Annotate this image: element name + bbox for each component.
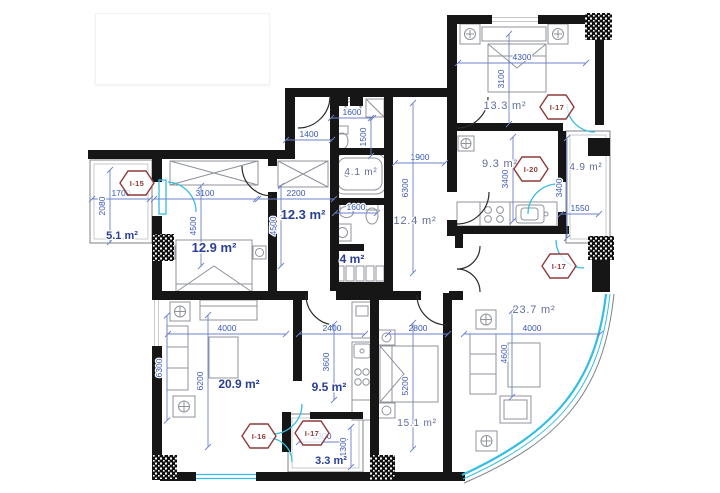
room-area-label: 15.1 m² xyxy=(397,418,437,429)
dimension-label: 3100 xyxy=(496,69,506,88)
dimension-label: 1300 xyxy=(338,437,348,456)
dimension-label: 1400 xyxy=(300,129,319,139)
dimension-label: 3100 xyxy=(196,188,215,198)
unit-tag-label: I-15 xyxy=(130,179,145,188)
dimension-label: 1500 xyxy=(358,127,368,146)
unit-tag: I-17 xyxy=(540,95,574,119)
wardrobe xyxy=(170,161,328,187)
room-area-label: 4 m² xyxy=(340,252,365,266)
room-area-label: 13.3 m² xyxy=(484,100,527,112)
dimension: 6200 xyxy=(195,312,211,450)
dimension-label: 2400 xyxy=(323,323,342,333)
dimension-label: 6200 xyxy=(195,371,205,390)
dimension-label: 4000 xyxy=(218,323,237,333)
room-area-label: 3.3 m² xyxy=(315,455,347,467)
room-area-label: 5.1 m² xyxy=(106,230,138,242)
unit-tag-label: I-20 xyxy=(524,165,539,174)
room-area-label: 4.1 m² xyxy=(344,167,377,178)
room-area-label: 12.3 m² xyxy=(281,207,326,222)
dimension-label: 6300 xyxy=(400,178,410,197)
unit-tag-label: I-17 xyxy=(550,103,565,112)
dimension-label: 1600 xyxy=(347,202,366,212)
dimension: 1900 xyxy=(392,152,448,166)
unit-tag: I-16 xyxy=(242,424,276,448)
unit-tag: I-17 xyxy=(295,421,329,445)
dimension: 2200 xyxy=(255,188,337,202)
dimension-label: 3600 xyxy=(321,352,331,371)
room-area-label: 9.3 m² xyxy=(482,158,518,170)
dimension-label: 3400 xyxy=(554,178,564,197)
unit-tag-label: I-16 xyxy=(252,432,267,441)
dimension-label: 2080 xyxy=(97,196,107,215)
unit-tag: I-15 xyxy=(120,171,154,195)
dimension-label: 4500 xyxy=(268,216,278,235)
sofa xyxy=(167,300,257,417)
dimension-label: 4600 xyxy=(499,344,509,363)
dimension-label: 4000 xyxy=(523,323,542,333)
room-area-label: 9.5 m² xyxy=(312,380,347,394)
dimension-label: 1600 xyxy=(343,107,362,117)
dimension-label: 1550 xyxy=(571,203,590,213)
room-area-label: 12.9 m² xyxy=(192,240,237,255)
floor-plan: 1700208031002200140045004500160015001600… xyxy=(0,0,720,493)
dimension-label: 5200 xyxy=(400,376,410,395)
dimension-label: 4300 xyxy=(513,52,532,62)
dimension-label: 4500 xyxy=(188,216,198,235)
balcony-door-leaf xyxy=(159,180,166,214)
bed xyxy=(378,330,438,418)
room-area-label: 20.9 m² xyxy=(218,377,259,391)
room-area-label: 12.4 m² xyxy=(394,215,437,227)
dimension-label: 6300 xyxy=(154,358,164,377)
room-area-label: 23.7 m² xyxy=(513,304,556,316)
kitchen-counter xyxy=(352,302,372,420)
unit-tag-label: I-17 xyxy=(552,262,567,271)
kitchen-counter xyxy=(457,202,557,226)
dimension: 3100 xyxy=(151,188,259,202)
balcony-door-swing xyxy=(168,182,196,212)
dimension-label: 3400 xyxy=(500,169,510,188)
floor-plan-sheet: 1700208031002200140045004500160015001600… xyxy=(0,0,720,493)
dimension: 6300 xyxy=(400,100,416,276)
unit-tag: I-17 xyxy=(542,254,576,278)
dimension-label: 2200 xyxy=(287,188,306,198)
unit-tag: I-20 xyxy=(514,157,548,181)
room-area-label: 4.9 m² xyxy=(569,162,602,173)
unit-tag-label: I-17 xyxy=(305,429,320,438)
